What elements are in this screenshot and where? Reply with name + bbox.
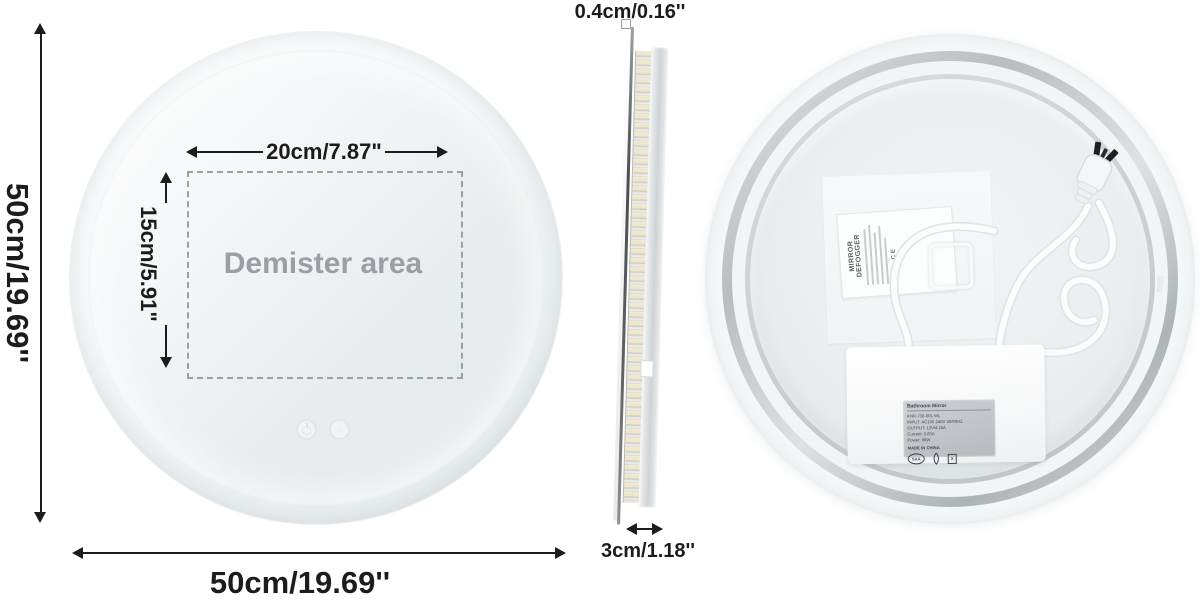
mirror-dimension-diagram: 50cm/19.69'' 50cm/19.69'' Demister area … — [0, 0, 1200, 608]
power-cord-graphic — [0, 0, 1200, 608]
power-plug-icon — [1068, 139, 1121, 208]
junction-box: Bathroom Mirror KNR-738-601-WL INPUT: AC… — [846, 345, 1046, 465]
driver-spec-label: Bathroom Mirror KNR-738-601-WL INPUT: AC… — [903, 399, 996, 457]
driver-label-madein: MADE IN CHINA — [908, 445, 992, 451]
saa-cert-icon: SAA — [908, 454, 925, 465]
trash-bin-icon: x — [948, 454, 957, 464]
driver-label-title: Bathroom Mirror — [907, 402, 991, 411]
driver-label-cert-icons: SAA x — [908, 453, 992, 465]
power-cord-path — [894, 227, 994, 360]
driver-label-line: Power: 96W — [907, 437, 991, 444]
leaf-icon — [930, 453, 943, 466]
